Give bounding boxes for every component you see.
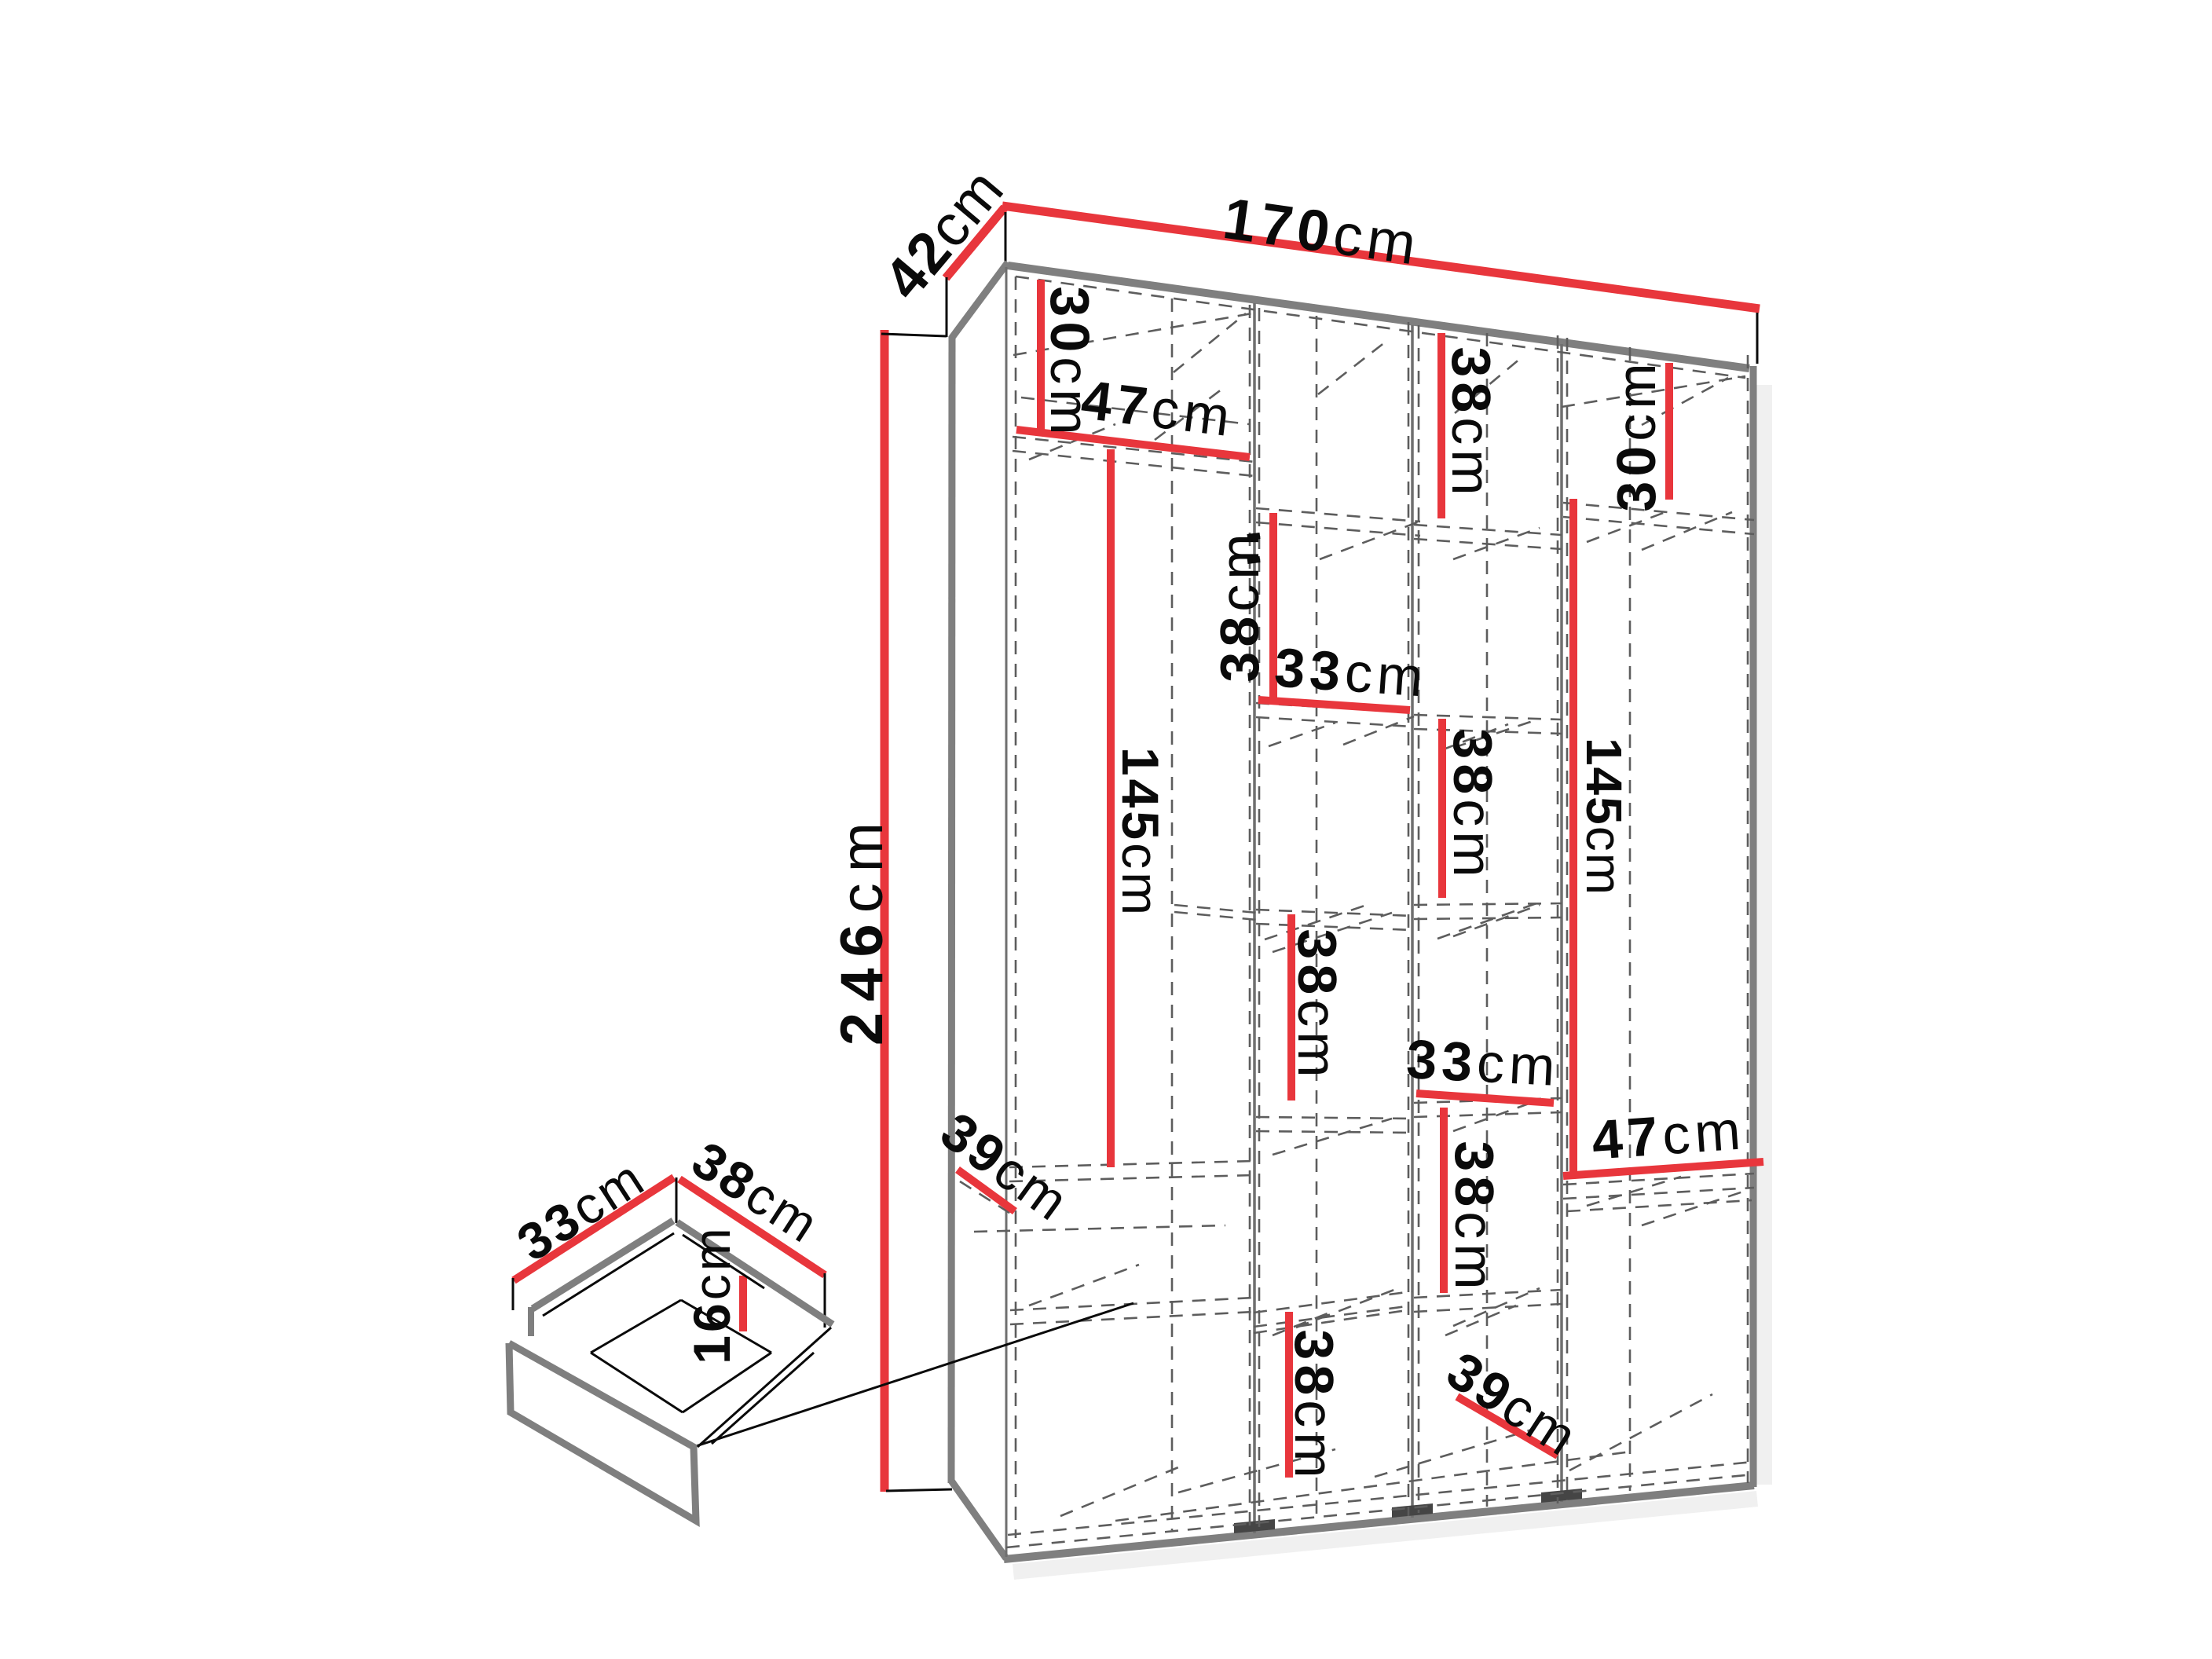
svg-text:38cm: 38cm	[1284, 1329, 1345, 1482]
svg-text:145cm: 145cm	[1576, 738, 1632, 896]
svg-text:38cm: 38cm	[1209, 529, 1270, 682]
svg-text:38cm: 38cm	[1441, 346, 1502, 500]
svg-text:38cm: 38cm	[1442, 728, 1503, 881]
svg-text:16cm: 16cm	[683, 1225, 741, 1364]
svg-text:145cm: 145cm	[1111, 747, 1170, 918]
svg-text:38cm: 38cm	[1444, 1141, 1505, 1294]
svg-text:33cm: 33cm	[1404, 1028, 1561, 1097]
svg-text:30cm: 30cm	[1606, 358, 1667, 511]
svg-text:246cm: 246cm	[829, 811, 895, 1046]
svg-text:47cm: 47cm	[1590, 1099, 1747, 1170]
svg-text:38cm: 38cm	[1287, 928, 1348, 1082]
svg-text:33cm: 33cm	[1273, 636, 1430, 708]
